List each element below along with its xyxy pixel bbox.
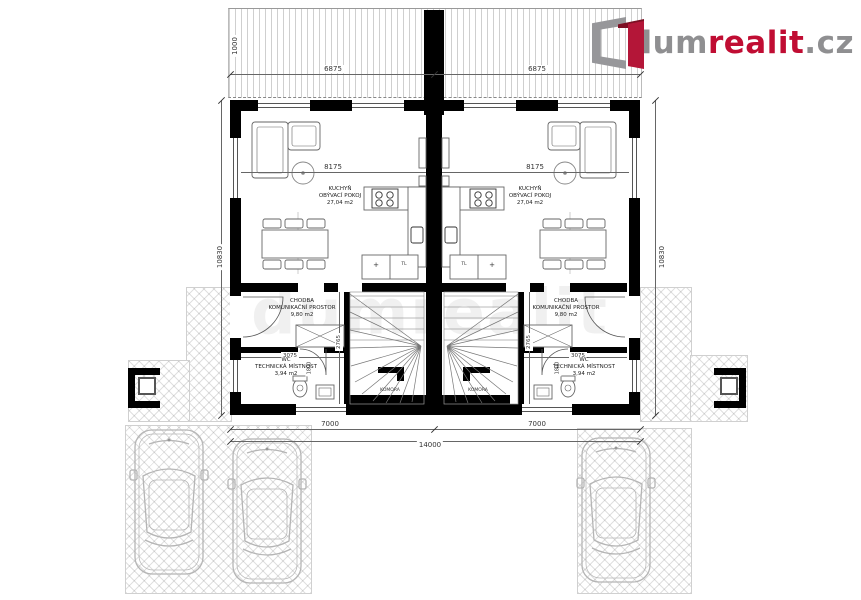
dim-side-left: 10830	[216, 244, 224, 270]
dim-side-right: 10830	[658, 244, 666, 270]
room-komora-left: KOMORA	[380, 388, 400, 393]
room-hall-right-name2: KOMUNIKAČNÍ PROSTOR	[532, 305, 599, 312]
dim-living-left-line	[241, 172, 426, 173]
room-living-right-area: 27,04 m2	[509, 200, 551, 207]
dim-top-right: 6875	[526, 65, 548, 73]
dim-right-line	[655, 100, 656, 415]
dim-bath-left: 2765	[335, 333, 343, 351]
room-hall-left-area: 9,80 m2	[268, 312, 335, 319]
room-komora-right: KOMORA	[468, 388, 488, 393]
room-wc-right-name: WC	[553, 357, 615, 364]
room-living-left-name: KUCHYŇ	[319, 186, 361, 193]
room-living-left-name2: OBÝVACÍ POKOJ	[319, 193, 361, 200]
dim-living-right-line	[442, 172, 629, 173]
dim-bottom-total: 14000	[417, 441, 443, 449]
room-wc-left-name: WC	[255, 357, 317, 364]
dumrealit-logo[interactable]: dumrealit.cz	[592, 14, 854, 72]
dumrealit-logo-text: dumrealit.cz	[630, 28, 854, 59]
plan-linework	[0, 0, 861, 600]
room-living-left: KUCHYŇ OBÝVACÍ POKOJ 27,04 m2	[319, 186, 361, 207]
room-wc-left: WC TECHNICKÁ MÍSTNOST 3,94 m2	[255, 357, 317, 378]
room-living-right-name2: OBÝVACÍ POKOJ	[509, 193, 551, 200]
dim-corner-left: 1000	[231, 35, 239, 57]
room-wc-right: WC TECHNICKÁ MÍSTNOST 3,94 m2	[553, 357, 615, 378]
car-1	[130, 430, 208, 574]
room-wc-left-area: 3,94 m2	[255, 371, 317, 378]
appliance-fridge-left: +	[373, 263, 379, 268]
dim-living-right: 8175	[524, 163, 546, 171]
dim-bottom-left: 7000	[319, 420, 341, 428]
logo-red-shape	[628, 21, 644, 69]
room-living-right-name: KUCHYŇ	[509, 186, 551, 193]
room-hall-left-name2: KOMUNIKAČNÍ PROSTOR	[268, 305, 335, 312]
logo-text-cz: .cz	[804, 25, 854, 61]
room-hall-left: CHODBA KOMUNIKAČNÍ PROSTOR 9,80 m2	[268, 298, 335, 319]
room-living-left-area: 27,04 m2	[319, 200, 361, 207]
room-living-right: KUCHYŇ OBÝVACÍ POKOJ 27,04 m2	[509, 186, 551, 207]
car-3	[577, 438, 655, 582]
room-hall-right: CHODBA KOMUNIKAČNÍ PROSTOR 9,80 m2	[532, 298, 599, 319]
room-wc-left-name2: TECHNICKÁ MÍSTNOST	[255, 364, 317, 371]
room-hall-right-name: CHODBA	[532, 298, 599, 305]
appliance-washer-right: TL	[461, 262, 466, 267]
dim-bottom-right: 7000	[526, 420, 548, 428]
dim-top-left: 6875	[322, 65, 344, 73]
dim-bath-right: 2765	[525, 333, 533, 351]
room-hall-left-name: CHODBA	[268, 298, 335, 305]
room-wc-right-area: 3,94 m2	[553, 371, 615, 378]
logo-text-realit: realit	[708, 25, 804, 61]
appliance-washer-left: TL	[401, 262, 406, 267]
room-hall-right-area: 9,80 m2	[532, 312, 599, 319]
appliance-fridge-right: +	[489, 263, 495, 268]
room-wc-right-name2: TECHNICKÁ MÍSTNOST	[553, 364, 615, 371]
car-2	[228, 439, 306, 583]
dumrealit-logo-icon	[592, 17, 622, 69]
dim-living-left: 8175	[322, 163, 344, 171]
floor-plan-canvas: dumrealit	[0, 0, 861, 600]
